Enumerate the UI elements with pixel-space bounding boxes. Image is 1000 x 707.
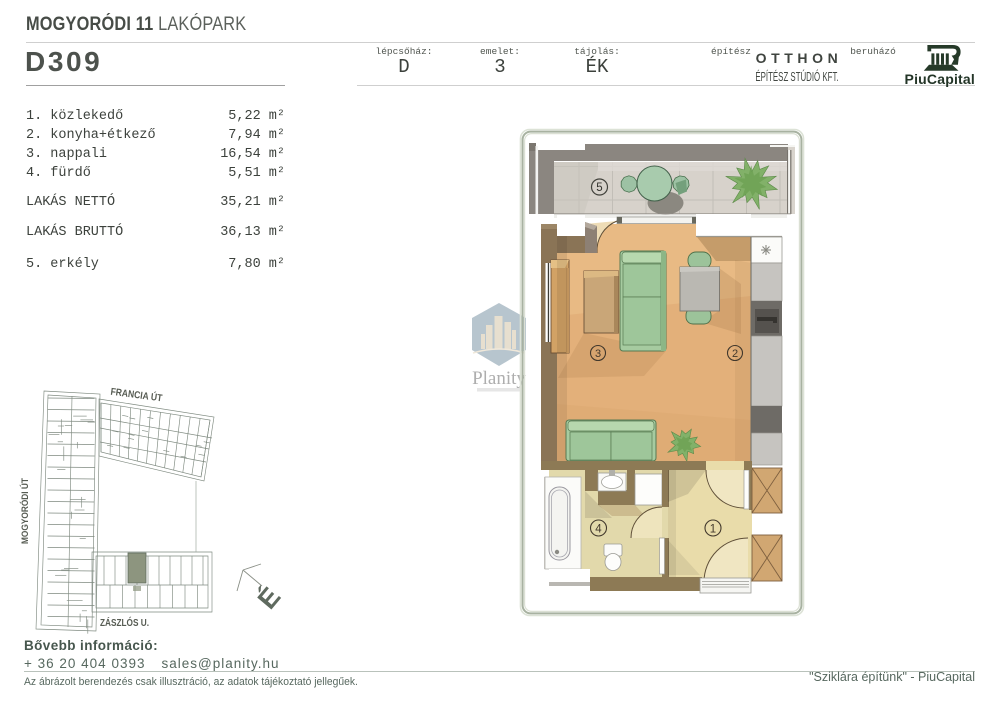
svg-text:FRANCIA ÚT: FRANCIA ÚT <box>110 385 163 405</box>
svg-text:5: 5 <box>596 182 602 194</box>
svg-text:MOGYORÓDI ÚT: MOGYORÓDI ÚT <box>19 478 31 544</box>
svg-text:3: 3 <box>595 348 601 360</box>
svg-text:4: 4 <box>595 523 602 535</box>
svg-text:1: 1 <box>710 523 716 535</box>
svg-text:ZÁSZLÓS U.: ZÁSZLÓS U. <box>100 616 149 629</box>
svg-text:2: 2 <box>732 348 738 360</box>
svg-text:É: É <box>251 581 286 615</box>
